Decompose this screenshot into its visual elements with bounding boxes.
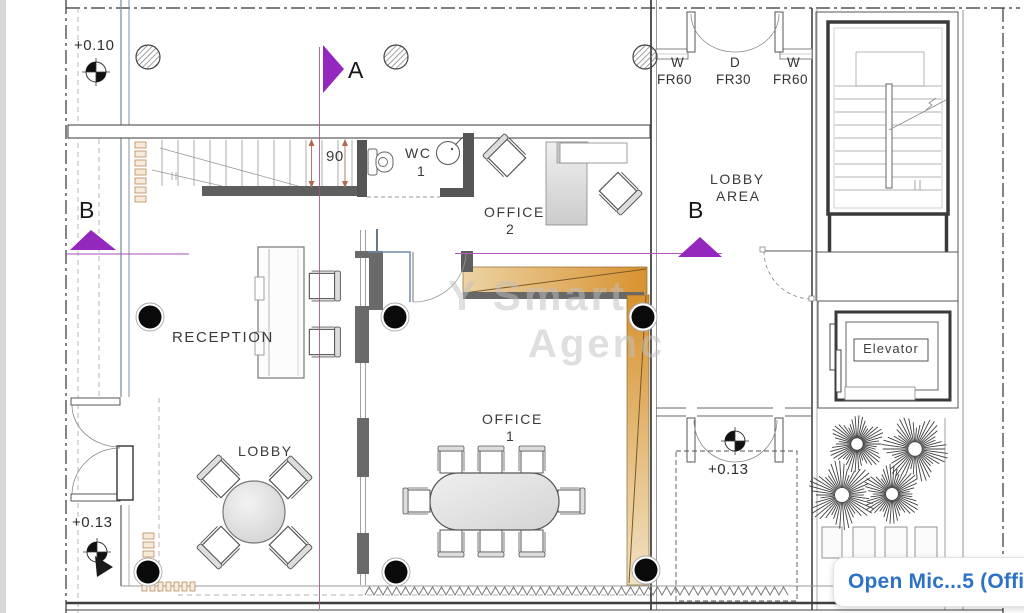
screen-edge bbox=[0, 0, 6, 613]
section-marker-a bbox=[323, 45, 344, 93]
opening-type-d: D bbox=[730, 55, 740, 70]
lobby-furniture bbox=[196, 454, 312, 569]
reception-desk bbox=[255, 247, 340, 378]
room-label-office2-number: 2 bbox=[506, 221, 515, 237]
watermark-line-1: Y Smart bbox=[448, 272, 627, 320]
room-label-office1-number: 1 bbox=[506, 428, 515, 444]
fire-rating-w1: FR60 bbox=[657, 72, 692, 87]
conference-furniture bbox=[403, 446, 585, 557]
entrance-doors bbox=[71, 398, 133, 501]
window-title-text: Open Mic...5 (Office) bbox=[848, 570, 1024, 594]
room-label-wc-number: 1 bbox=[417, 163, 426, 179]
room-label-lobby: LOBBY bbox=[238, 443, 293, 459]
fire-rating-w2: FR60 bbox=[773, 72, 808, 87]
insulation-zigzag bbox=[365, 587, 788, 595]
section-b-right-label: B bbox=[688, 197, 703, 224]
level-label-lower-left: +0.13 bbox=[72, 514, 112, 531]
wc-fixtures bbox=[357, 133, 474, 197]
watermark-line-2: Agenc bbox=[528, 322, 665, 367]
section-a-label: A bbox=[348, 57, 363, 84]
hatched-columns bbox=[136, 45, 657, 69]
level-label-upper-left: +0.10 bbox=[74, 37, 114, 54]
trees bbox=[809, 415, 947, 530]
room-label-wc: WC bbox=[405, 145, 432, 161]
lobby-area-door bbox=[760, 247, 814, 301]
room-label-office1: OFFICE bbox=[482, 411, 543, 427]
level-label-courtyard: +0.13 bbox=[708, 461, 748, 478]
window-title-overlay[interactable]: Open Mic...5 (Office) bbox=[833, 557, 1024, 607]
room-label-office2: OFFICE bbox=[484, 204, 545, 220]
elevator-label: Elevator bbox=[854, 341, 928, 356]
room-label-lobby-area-2: AREA bbox=[716, 188, 761, 204]
fire-rating-d: FR30 bbox=[716, 72, 751, 87]
section-marker-b-left bbox=[70, 230, 116, 250]
brick-hatch bbox=[135, 142, 195, 591]
stair-width-dimension: 90 bbox=[326, 148, 344, 165]
section-b-left-label: B bbox=[79, 197, 94, 224]
room-label-reception: RECEPTION bbox=[172, 329, 274, 346]
floor-plan-canvas: +0.10 A 90 WC 1 OFFICE 2 B B LOBBY AREA … bbox=[0, 0, 1024, 613]
stair-block bbox=[816, 12, 958, 301]
courtyard-top bbox=[656, 12, 812, 59]
section-marker-b-right bbox=[678, 237, 722, 257]
landscape bbox=[809, 415, 947, 558]
room-label-lobby-area-1: LOBBY bbox=[710, 171, 765, 187]
opening-type-w2: W bbox=[787, 55, 800, 70]
stair-edge-wall bbox=[202, 186, 362, 196]
opening-type-w1: W bbox=[671, 55, 684, 70]
